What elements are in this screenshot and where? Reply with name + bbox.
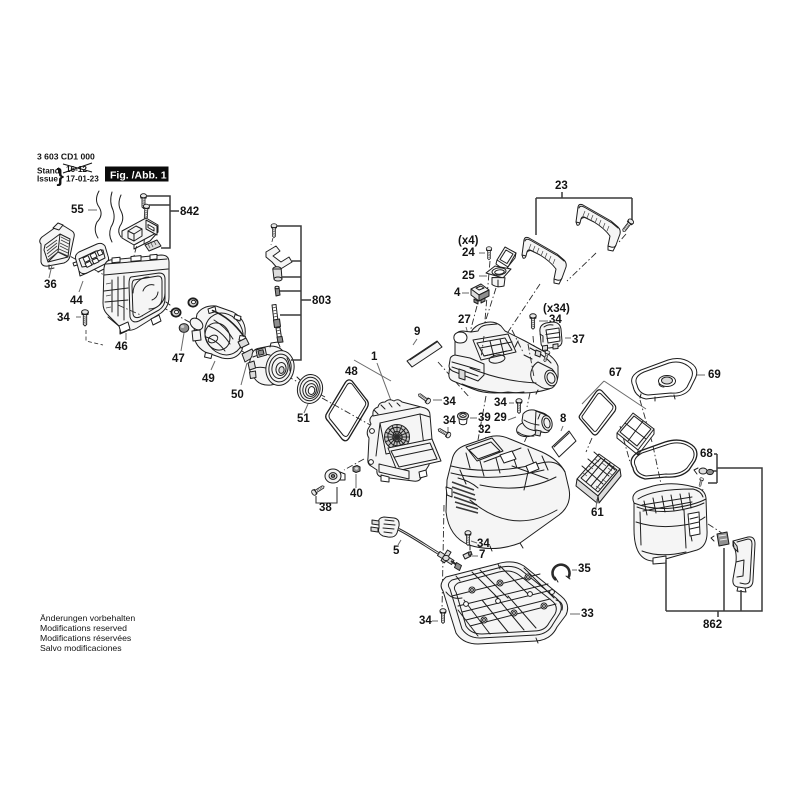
svg-text:48: 48	[345, 366, 358, 378]
svg-text:4: 4	[454, 287, 461, 299]
svg-text:34: 34	[57, 312, 70, 324]
svg-text:34: 34	[494, 397, 507, 409]
svg-text:Modifications reserved: Modifications reserved	[40, 623, 127, 633]
svg-text:34: 34	[443, 415, 456, 427]
svg-text:862: 862	[703, 619, 722, 631]
svg-text:47: 47	[172, 353, 185, 365]
svg-text:803: 803	[312, 295, 331, 307]
svg-text:5: 5	[393, 545, 400, 557]
svg-text:50: 50	[231, 389, 244, 401]
svg-text:67: 67	[609, 367, 622, 379]
svg-text:}: }	[57, 166, 65, 187]
svg-text:38: 38	[319, 502, 332, 514]
svg-text:3 603 CD1 000: 3 603 CD1 000	[37, 152, 95, 162]
svg-text:7: 7	[479, 549, 485, 561]
svg-text:40: 40	[350, 488, 363, 500]
svg-text:69: 69	[708, 369, 721, 381]
svg-text:842: 842	[180, 206, 199, 218]
svg-text:8: 8	[560, 413, 567, 425]
svg-text:9: 9	[414, 326, 420, 338]
svg-text:34: 34	[443, 396, 456, 408]
svg-text:51: 51	[297, 413, 310, 425]
svg-text:27: 27	[458, 314, 471, 326]
svg-text:37: 37	[572, 334, 585, 346]
svg-text:32: 32	[478, 424, 491, 436]
svg-text:34: 34	[419, 615, 432, 627]
svg-text:Modifications réservées: Modifications réservées	[40, 633, 132, 643]
svg-text:39: 39	[478, 412, 491, 424]
svg-text:25: 25	[462, 270, 475, 282]
svg-text:29: 29	[494, 412, 507, 424]
svg-text:(x4): (x4)	[458, 235, 479, 247]
svg-text:33: 33	[581, 608, 594, 620]
svg-text:23: 23	[555, 180, 568, 192]
svg-text:46: 46	[115, 341, 128, 353]
svg-text:44: 44	[70, 295, 83, 307]
svg-text:Fig. /Abb. 1: Fig. /Abb. 1	[110, 170, 167, 182]
svg-text:Issue: Issue	[37, 175, 58, 184]
svg-text:Salvo modificaciones: Salvo modificaciones	[40, 643, 122, 653]
svg-text:17-01-23: 17-01-23	[66, 175, 99, 184]
svg-text:36: 36	[44, 279, 57, 291]
svg-text:24: 24	[462, 247, 475, 259]
svg-text:68: 68	[700, 448, 713, 460]
svg-text:61: 61	[591, 507, 604, 519]
svg-text:1: 1	[371, 351, 378, 363]
svg-text:35: 35	[578, 563, 591, 575]
svg-text:49: 49	[202, 373, 215, 385]
svg-text:55: 55	[71, 204, 84, 216]
svg-text:Änderungen vorbehalten: Änderungen vorbehalten	[40, 613, 135, 623]
